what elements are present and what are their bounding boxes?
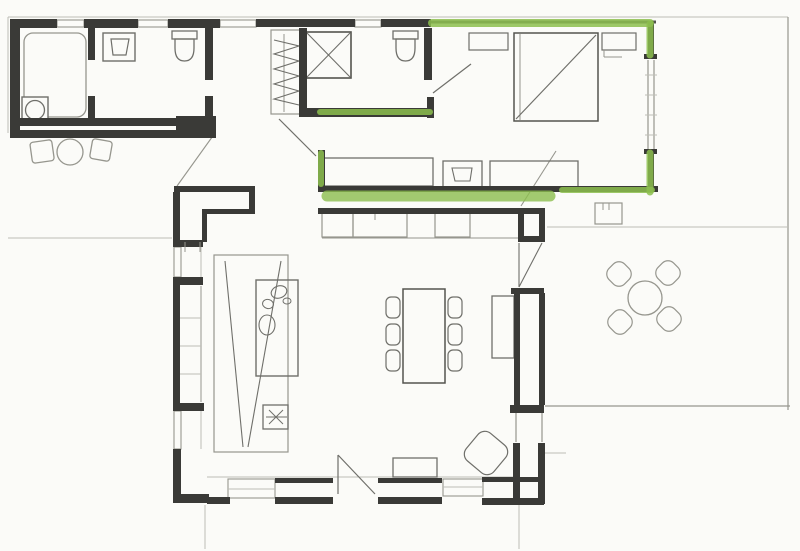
window-top-3: [220, 20, 256, 27]
wall-top-3: [168, 19, 220, 28]
scanned-floor-plan: [0, 0, 800, 551]
wall-east-low-b: [538, 443, 545, 504]
wall-bath-east-stub: [205, 96, 213, 118]
window-west-2: [174, 411, 181, 449]
wall-top-4: [256, 19, 355, 27]
wall-living-west-cap-3: [173, 403, 204, 411]
wall-top-2: [84, 19, 138, 28]
entry-closet-wall-top: [174, 186, 255, 192]
wall-south-1-outer: [275, 497, 333, 504]
wall-laundry-bath-divider: [88, 28, 95, 60]
floor-plan-svg: [0, 0, 800, 551]
window-top-4: [355, 20, 381, 27]
wall-living-west-1: [173, 192, 180, 240]
wall-laundry-bath-stub: [88, 96, 95, 118]
window-west-1: [174, 247, 181, 277]
wall-east-low-a: [513, 443, 520, 504]
wall-living-west-cap-1: [173, 240, 203, 247]
entry-closet-wall-south: [202, 209, 255, 214]
wall-ne-corner-c: [518, 236, 545, 242]
wall-wing-bottom-inner: [18, 118, 178, 126]
wall-living-west-2: [173, 285, 180, 405]
entry-closet-wall-west: [202, 209, 207, 242]
window-top-1: [57, 20, 84, 27]
wall-east-cap-mid: [511, 288, 544, 294]
wall-south-left-outer: [207, 497, 230, 504]
dining-table: [403, 289, 445, 383]
wall-closet-east: [299, 28, 307, 115]
wall-south-2-inner: [378, 478, 442, 483]
wall-sw-corner: [173, 494, 209, 503]
wall-shower-east: [424, 28, 432, 80]
wall-east-mid-b: [539, 293, 545, 405]
wall-south-2-outer: [378, 497, 442, 504]
wall-wing-bottom-end: [176, 116, 216, 138]
wall-east-mid-a: [514, 293, 520, 405]
wall-wing-bottom-outer: [10, 130, 182, 138]
wall-east-cap-low: [510, 405, 544, 413]
wall-bath-east: [205, 28, 213, 80]
wall-living-west-3: [173, 449, 181, 499]
window-top-2: [138, 20, 168, 27]
wall-south-1-inner: [275, 478, 333, 483]
wall-living-west-cap-2: [173, 277, 203, 285]
wall-top-5: [381, 19, 431, 27]
